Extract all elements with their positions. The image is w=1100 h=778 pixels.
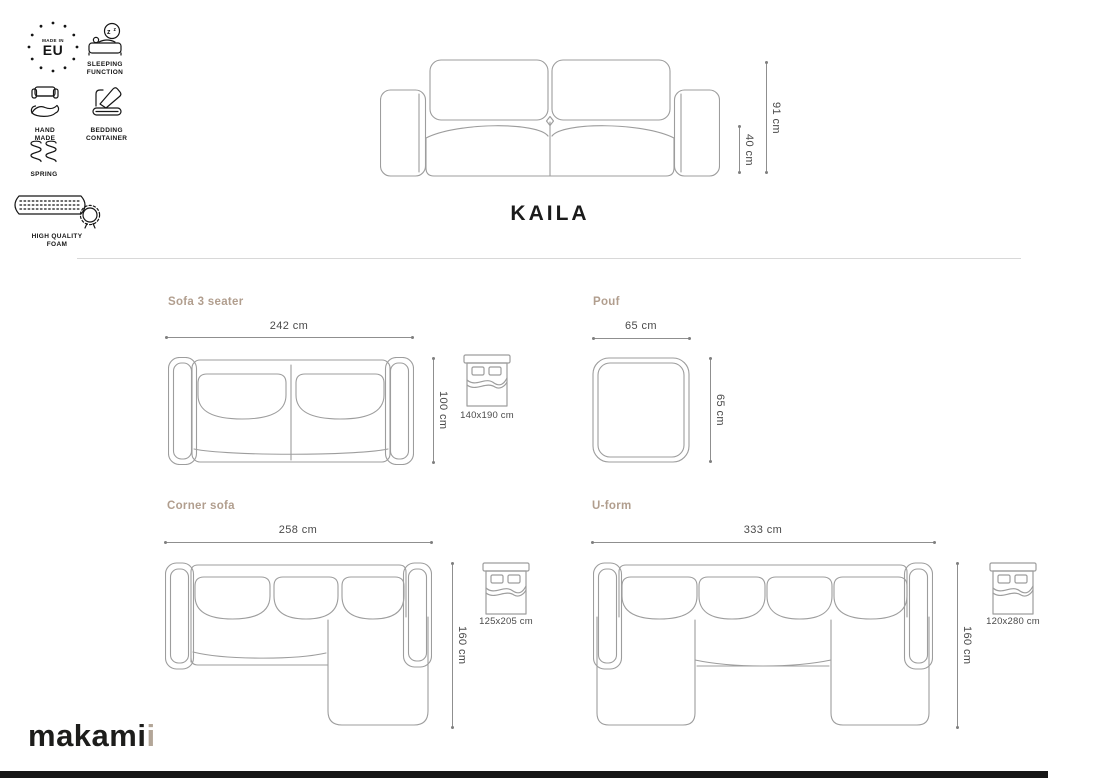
front-seat-height-dim-line	[739, 126, 740, 173]
badge-spring: SPRING	[28, 140, 60, 179]
badge-sleeping-line1: SLEEPING	[87, 61, 123, 69]
brand-logo: makamii	[28, 718, 156, 754]
sofa3-width-dim-label: 242 cm	[214, 320, 364, 332]
bottom-bar	[0, 771, 1048, 778]
badge-handmade-line1: HAND	[35, 127, 56, 135]
badge-foam-line2: FOAM	[32, 241, 83, 249]
section-divider	[77, 258, 1021, 259]
uform-width-dim-label: 333 cm	[688, 524, 838, 536]
product-title: KAILA	[0, 202, 1100, 226]
section-label-pouf: Pouf	[593, 296, 620, 308]
pouf-depth-dim-line	[710, 358, 711, 462]
corner-depth-dim-line	[452, 563, 453, 728]
pouf-depth-dim-label: 65 cm	[714, 358, 726, 462]
badge-bedding-line1: BEDDING	[86, 127, 127, 135]
corner-depth-dim-label: 160 cm	[456, 563, 468, 728]
section-label-sofa3: Sofa 3 seater	[168, 296, 244, 308]
front-height-dim-line	[766, 62, 767, 173]
badge-sleeping-line2: FUNCTION	[87, 69, 123, 77]
sofa3-sleeping-area-label: 140x190 cm	[442, 410, 532, 421]
badge-made-in-eu: MADE IN EU	[26, 20, 80, 74]
pouf-width-dim-label: 65 cm	[566, 320, 716, 332]
bedding-container-icon	[88, 82, 126, 124]
uform-top-view-drawing	[593, 562, 933, 729]
brand-logo-main: makami	[28, 718, 146, 753]
spec-sheet-page: MADE IN EU z z SLEEPING FUNCTION	[0, 0, 1100, 778]
corner-bed-icon	[481, 560, 531, 616]
corner-sleeping-area-label: 125x205 cm	[461, 616, 551, 627]
svg-text:z: z	[107, 29, 111, 36]
sofa3-width-dim-line	[166, 337, 413, 338]
badge-spring-line1: SPRING	[30, 171, 57, 179]
badge-foam-line1: HIGH QUALITY	[32, 233, 83, 241]
corner-width-dim-line	[165, 542, 432, 543]
badge-bedding-line2: CONTAINER	[86, 135, 127, 143]
sofa-front-view-drawing	[380, 58, 720, 178]
badge-hand-made: HAND MADE	[26, 84, 64, 144]
brand-logo-accent: i	[146, 718, 155, 753]
sofa3-top-view-drawing	[168, 357, 414, 465]
hand-made-icon	[26, 84, 64, 124]
pouf-top-view-drawing	[592, 357, 690, 463]
section-label-uform: U-form	[592, 500, 632, 512]
uform-width-dim-line	[592, 542, 935, 543]
svg-text:z: z	[114, 27, 117, 33]
badge-bedding-container: BEDDING CONTAINER	[86, 82, 127, 144]
sofa3-depth-dim-line	[433, 358, 434, 463]
uform-depth-dim-label: 160 cm	[961, 563, 973, 728]
sofa3-bed-icon	[462, 352, 512, 408]
front-height-dim-label: 91 cm	[770, 62, 782, 173]
spring-icon	[28, 140, 60, 168]
badge-sleeping-function: z z SLEEPING FUNCTION	[86, 22, 124, 78]
badge-eu-main-label: EU	[43, 43, 63, 57]
section-label-corner: Corner sofa	[167, 500, 235, 512]
uform-depth-dim-line	[957, 563, 958, 728]
front-seat-height-dim-label: 40 cm	[743, 126, 755, 173]
pouf-width-dim-line	[593, 338, 690, 339]
sleeping-function-icon: z z	[86, 22, 124, 58]
corner-width-dim-label: 258 cm	[223, 524, 373, 536]
uform-bed-icon	[988, 560, 1038, 616]
uform-sleeping-area-label: 120x280 cm	[968, 616, 1058, 627]
corner-top-view-drawing	[165, 562, 432, 729]
